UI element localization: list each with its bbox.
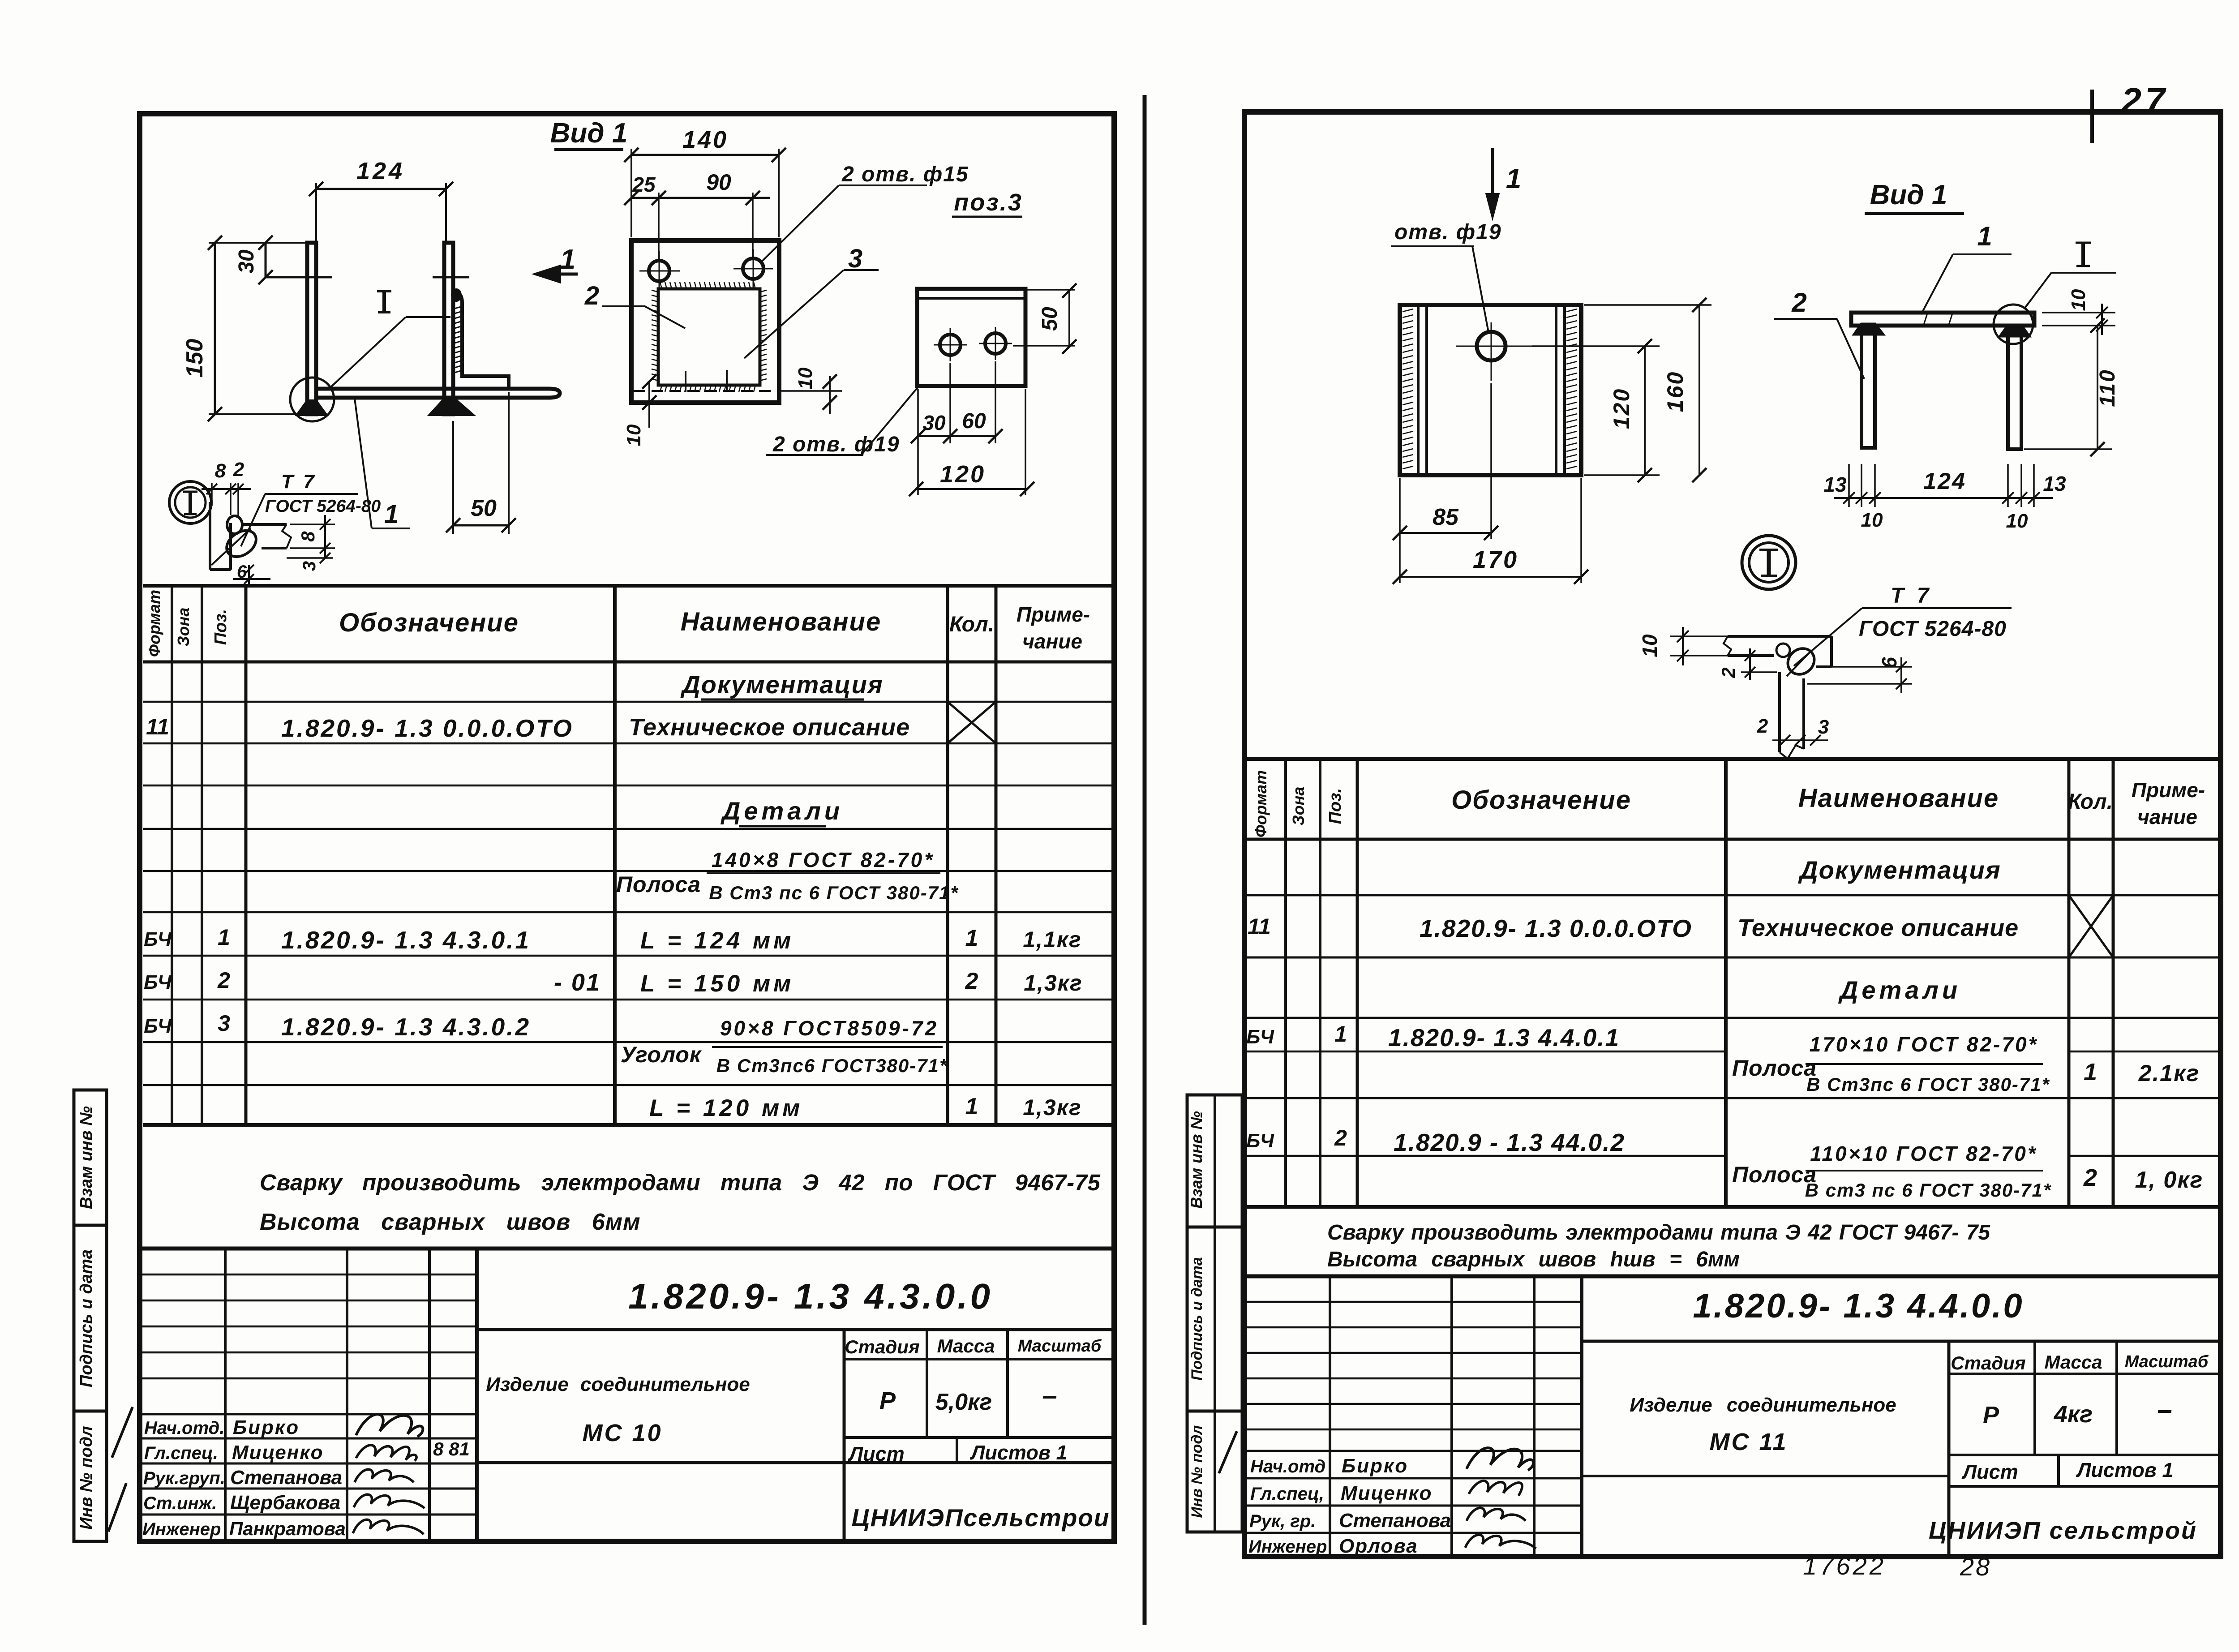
svg-text:17622: 17622	[1803, 1552, 1886, 1580]
svg-text:3: 3	[300, 561, 319, 571]
svg-text:Документация: Документация	[680, 670, 884, 699]
svg-text:Нач.отд.: Нач.отд.	[144, 1418, 224, 1438]
svg-text:Стадия: Стадия	[1951, 1352, 2025, 1373]
svg-text:Полоса: Полоса	[1732, 1162, 1817, 1187]
svg-text:Наименование: Наименование	[681, 607, 881, 636]
svg-text:Инв № подл: Инв № подл	[77, 1426, 96, 1529]
svg-text:Полоса: Полоса	[616, 872, 701, 897]
svg-text:Бирко: Бирко	[1342, 1455, 1408, 1477]
svg-text:11: 11	[1248, 914, 1271, 939]
svg-text:–: –	[2157, 1395, 2172, 1425]
svg-text:25: 25	[632, 173, 656, 196]
svg-text:Обозначение: Обозначение	[1451, 785, 1631, 815]
svg-text:11: 11	[146, 714, 169, 739]
svg-text:60: 60	[962, 409, 986, 433]
svg-text:1.820.9- 1.3 4.3.0.0: 1.820.9- 1.3 4.3.0.0	[628, 1276, 993, 1316]
svg-text:Приме-: Приме-	[2132, 778, 2205, 802]
svg-text:2: 2	[1718, 667, 1739, 678]
svg-text:Щербакова: Щербакова	[230, 1492, 340, 1514]
svg-text:8: 8	[297, 531, 318, 542]
svg-text:170×10 ГОСТ 82-70*: 170×10 ГОСТ 82-70*	[1810, 1033, 2038, 1056]
svg-text:Рук.груп.: Рук.груп.	[143, 1468, 225, 1488]
svg-text:Орлова: Орлова	[1339, 1535, 1418, 1557]
svg-text:10: 10	[794, 367, 816, 389]
svg-text:120: 120	[940, 461, 986, 488]
svg-text:28: 28	[1960, 1553, 1991, 1581]
svg-text:Детали: Детали	[721, 797, 843, 825]
svg-text:Поз.: Поз.	[211, 609, 230, 645]
svg-text:3: 3	[848, 244, 862, 273]
svg-text:Гл.спец.: Гл.спец.	[144, 1443, 218, 1463]
svg-text:Бирко: Бирко	[233, 1416, 300, 1438]
svg-text:10: 10	[623, 424, 645, 446]
svg-text:8 81: 8 81	[433, 1438, 470, 1459]
svg-text:1.820.9- 1.3 4.3.0.2: 1.820.9- 1.3 4.3.0.2	[281, 1013, 531, 1041]
svg-text:1: 1	[384, 500, 399, 529]
svg-text:2: 2	[233, 459, 244, 481]
svg-text:МС 10: МС 10	[582, 1420, 662, 1446]
svg-text:140: 140	[682, 126, 728, 153]
svg-text:Высота сварных швов hшв = 6мм: Высота сварных швов hшв = 6мм	[1327, 1248, 1740, 1271]
svg-text:1,3кг: 1,3кг	[1024, 970, 1083, 995]
svg-text:L = 150 мм: L = 150 мм	[640, 970, 794, 997]
svg-text:50: 50	[471, 495, 497, 521]
svg-text:МС 11: МС 11	[1709, 1429, 1788, 1455]
svg-text:3: 3	[1818, 716, 1829, 738]
svg-text:В Ст3 пс 6 ГОСТ 380-71*: В Ст3 пс 6 ГОСТ 380-71*	[709, 882, 959, 903]
svg-text:160: 160	[1663, 371, 1688, 412]
svg-text:Нач.отд: Нач.отд	[1250, 1457, 1325, 1476]
svg-text:30: 30	[235, 249, 258, 274]
svg-text:Изделие соединительное: Изделие соединительное	[1630, 1394, 1896, 1416]
svg-text:120: 120	[1609, 388, 1634, 429]
svg-text:Обозначение: Обозначение	[339, 608, 519, 637]
svg-text:1,1кг: 1,1кг	[1023, 927, 1082, 952]
svg-text:Ст.инж.: Ст.инж.	[143, 1493, 217, 1513]
svg-text:1: 1	[560, 244, 575, 275]
svg-text:чание: чание	[1022, 630, 1082, 653]
svg-text:Масштаб: Масштаб	[1018, 1337, 1102, 1356]
svg-text:БЧ: БЧ	[1246, 1130, 1274, 1152]
svg-text:Полоса: Полоса	[1732, 1056, 1817, 1081]
svg-text:6: 6	[1878, 657, 1901, 669]
svg-text:В Ст3пс6 ГОСТ380-71*: В Ст3пс6 ГОСТ380-71*	[716, 1055, 948, 1076]
svg-text:2: 2	[217, 968, 230, 993]
svg-text:ГОСТ 5264-80: ГОСТ 5264-80	[1859, 617, 2007, 641]
svg-text:Рук, гр.: Рук, гр.	[1249, 1511, 1316, 1531]
svg-text:2: 2	[1791, 287, 1806, 318]
svg-text:отв. ф19: отв. ф19	[1394, 220, 1502, 244]
svg-text:1: 1	[2084, 1059, 2097, 1086]
svg-text:4кг: 4кг	[2054, 1401, 2093, 1428]
svg-text:Высота сварных швов 6мм: Высота сварных швов 6мм	[260, 1209, 641, 1235]
svg-text:90: 90	[706, 170, 731, 195]
svg-text:Техническое описание: Техническое описание	[629, 714, 910, 741]
svg-text:L = 120 мм: L = 120 мм	[649, 1095, 803, 1121]
svg-text:БЧ: БЧ	[144, 1015, 172, 1037]
svg-text:Приме-: Приме-	[1017, 603, 1090, 626]
svg-text:10: 10	[1861, 509, 1883, 531]
svg-text:Инженер: Инженер	[142, 1519, 221, 1539]
svg-text:150: 150	[182, 339, 208, 378]
svg-text:13: 13	[1823, 473, 1847, 496]
svg-text:Уголок: Уголок	[621, 1042, 702, 1067]
svg-text:1.820.9- 1.3 0.0.0.ОТО: 1.820.9- 1.3 0.0.0.ОТО	[281, 714, 574, 742]
svg-text:1: 1	[1977, 221, 1992, 251]
svg-text:Взам инв №: Взам инв №	[1187, 1111, 1205, 1209]
svg-text:Масса: Масса	[2045, 1352, 2102, 1373]
svg-text:2: 2	[2083, 1164, 2097, 1191]
svg-text:БЧ: БЧ	[144, 971, 172, 993]
svg-text:Миценко: Миценко	[232, 1442, 324, 1463]
svg-text:Сварку производить электродами: Сварку производить электродами типа Э 42…	[260, 1170, 1100, 1195]
svg-text:В ст3 пс 6 ГОСТ 380-71*: В ст3 пс 6 ГОСТ 380-71*	[1805, 1180, 2052, 1201]
svg-text:Изделие соединительное: Изделие соединительное	[486, 1373, 750, 1395]
svg-text:Инженер: Инженер	[1248, 1537, 1327, 1557]
svg-text:Гл.спец,: Гл.спец,	[1250, 1484, 1324, 1504]
svg-text:1: 1	[965, 925, 978, 951]
svg-text:Листов 1: Листов 1	[2076, 1459, 2173, 1481]
svg-text:Зона: Зона	[1289, 787, 1308, 826]
svg-text:Лист: Лист	[1961, 1460, 2018, 1483]
svg-text:1: 1	[1334, 1021, 1347, 1047]
svg-text:2 отв. ф15: 2 отв. ф15	[841, 163, 969, 186]
svg-text:2 отв. ф19: 2 отв. ф19	[772, 433, 900, 456]
svg-text:140×8 ГОСТ 82-70*: 140×8 ГОСТ 82-70*	[712, 848, 935, 871]
svg-text:Масса: Масса	[937, 1335, 995, 1356]
svg-text:Детали: Детали	[1838, 976, 1961, 1004]
svg-text:10: 10	[2067, 289, 2089, 311]
svg-text:13: 13	[2043, 472, 2066, 495]
svg-text:ЦНИИЭПсельстрои: ЦНИИЭПсельстрои	[851, 1504, 1110, 1532]
svg-text:1.820.9- 1.3 0.0.0.ОТО: 1.820.9- 1.3 0.0.0.ОТО	[1420, 914, 1692, 942]
svg-text:1, 0кг: 1, 0кг	[2135, 1167, 2204, 1193]
svg-text:Кол.: Кол.	[949, 613, 994, 636]
svg-text:Инв № подл: Инв № подл	[1188, 1425, 1205, 1518]
svg-text:1: 1	[965, 1094, 978, 1120]
svg-text:2: 2	[1334, 1125, 1347, 1150]
svg-text:Кол.: Кол.	[2068, 790, 2113, 814]
svg-text:Стадия: Стадия	[845, 1336, 919, 1357]
svg-text:Формат: Формат	[1252, 770, 1270, 837]
svg-text:Миценко: Миценко	[1341, 1482, 1433, 1504]
svg-text:Подпись и дата: Подпись и дата	[77, 1249, 96, 1387]
svg-text:Масштаб: Масштаб	[2125, 1352, 2209, 1371]
svg-text:2: 2	[584, 281, 599, 310]
svg-text:Наименование: Наименование	[1798, 784, 1999, 813]
svg-text:1: 1	[218, 925, 230, 950]
svg-text:124: 124	[1923, 468, 1966, 494]
svg-text:Подпись и дата: Подпись и дата	[1188, 1257, 1205, 1381]
svg-text:3: 3	[218, 1011, 230, 1036]
svg-text:110×10 ГОСТ 82-70*: 110×10 ГОСТ 82-70*	[1810, 1142, 2037, 1165]
svg-text:Степанова: Степанова	[230, 1467, 342, 1489]
svg-text:В Ст3пс 6 ГОСТ 380-71*: В Ст3пс 6 ГОСТ 380-71*	[1806, 1074, 2050, 1095]
svg-text:30: 30	[922, 411, 946, 434]
svg-text:Т 7: Т 7	[1891, 584, 1932, 608]
svg-text:БЧ: БЧ	[144, 928, 172, 950]
svg-text:Листов 1: Листов 1	[969, 1441, 1067, 1464]
svg-text:чание: чание	[2137, 805, 2197, 828]
svg-text:2.1кг: 2.1кг	[2138, 1060, 2200, 1086]
svg-text:1.820.9- 1.3 4.4.0.0: 1.820.9- 1.3 4.4.0.0	[1693, 1287, 2024, 1325]
svg-text:Р: Р	[879, 1387, 896, 1414]
svg-text:8: 8	[215, 460, 226, 482]
svg-text:124: 124	[356, 158, 405, 185]
svg-text:85: 85	[1433, 504, 1459, 530]
svg-text:ГОСТ 5264-80: ГОСТ 5264-80	[265, 497, 381, 516]
svg-text:Поз.: Поз.	[1326, 788, 1345, 824]
svg-text:170: 170	[1473, 546, 1518, 573]
svg-text:Панкратова: Панкратова	[229, 1518, 346, 1539]
svg-text:50: 50	[1038, 307, 1062, 331]
svg-text:5,0кг: 5,0кг	[935, 1389, 992, 1415]
svg-text:Вид 1: Вид 1	[550, 118, 628, 149]
svg-text:1.820.9- 1.3 4.3.0.1: 1.820.9- 1.3 4.3.0.1	[281, 926, 531, 954]
svg-text:ЦНИИЭП сельстрой: ЦНИИЭП сельстрой	[1929, 1517, 2197, 1544]
svg-text:6: 6	[237, 562, 247, 582]
svg-text:Зона: Зона	[174, 608, 193, 647]
svg-text:110: 110	[2096, 369, 2119, 407]
svg-text:- 01: - 01	[554, 969, 601, 996]
svg-text:1.820.9- 1.3 4.4.0.1: 1.820.9- 1.3 4.4.0.1	[1388, 1024, 1620, 1051]
svg-text:1: 1	[1506, 163, 1521, 194]
svg-text:1,3кг: 1,3кг	[1023, 1095, 1082, 1120]
svg-text:10: 10	[2006, 510, 2028, 532]
svg-text:90×8 ГОСТ8509-72: 90×8 ГОСТ8509-72	[720, 1017, 939, 1040]
svg-text:Вид 1: Вид 1	[1870, 180, 1947, 210]
svg-text:2: 2	[1757, 715, 1768, 737]
svg-text:БЧ: БЧ	[1246, 1026, 1274, 1048]
svg-text:Формат: Формат	[145, 590, 163, 657]
svg-text:L = 124 мм: L = 124 мм	[640, 927, 794, 954]
svg-text:Лист: Лист	[848, 1442, 904, 1465]
svg-text:10: 10	[1638, 634, 1661, 657]
svg-text:2: 2	[965, 968, 978, 994]
svg-text:поз.3: поз.3	[954, 189, 1023, 216]
svg-text:Взам инв №: Взам инв №	[77, 1106, 96, 1209]
svg-text:Сварку производить электродами: Сварку производить электродами типа Э 42…	[1327, 1221, 1990, 1244]
svg-text:Р: Р	[1983, 1402, 1999, 1429]
svg-text:–: –	[1042, 1380, 1057, 1410]
svg-text:Т 7: Т 7	[281, 471, 317, 493]
svg-text:Документация: Документация	[1798, 856, 2001, 884]
svg-text:Степанова: Степанова	[1339, 1510, 1451, 1532]
svg-text:1.820.9 - 1.3 44.0.2: 1.820.9 - 1.3 44.0.2	[1394, 1129, 1625, 1156]
svg-text:Техническое описание: Техническое описание	[1737, 914, 2019, 941]
svg-text:27: 27	[2121, 81, 2169, 120]
